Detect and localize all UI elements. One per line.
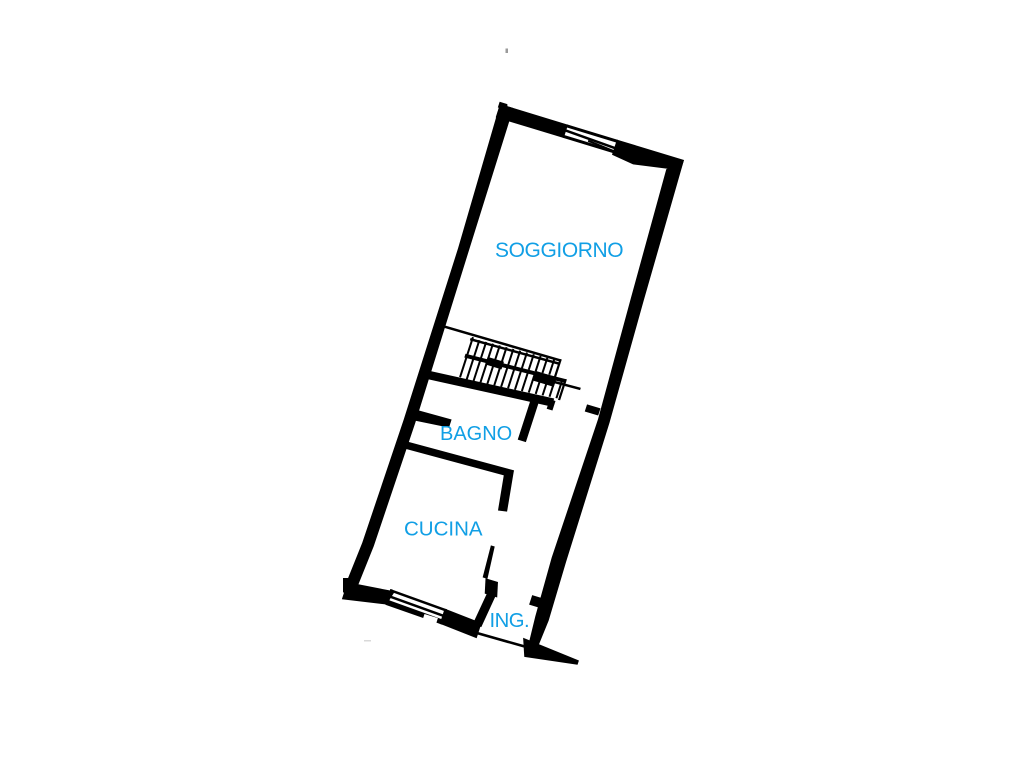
svg-text:ING.: ING.: [490, 610, 530, 632]
svg-text:CUCINA: CUCINA: [404, 518, 483, 541]
svg-text:SOGGIORNO: SOGGIORNO: [495, 239, 623, 262]
svg-text:BAGNO: BAGNO: [440, 423, 512, 445]
